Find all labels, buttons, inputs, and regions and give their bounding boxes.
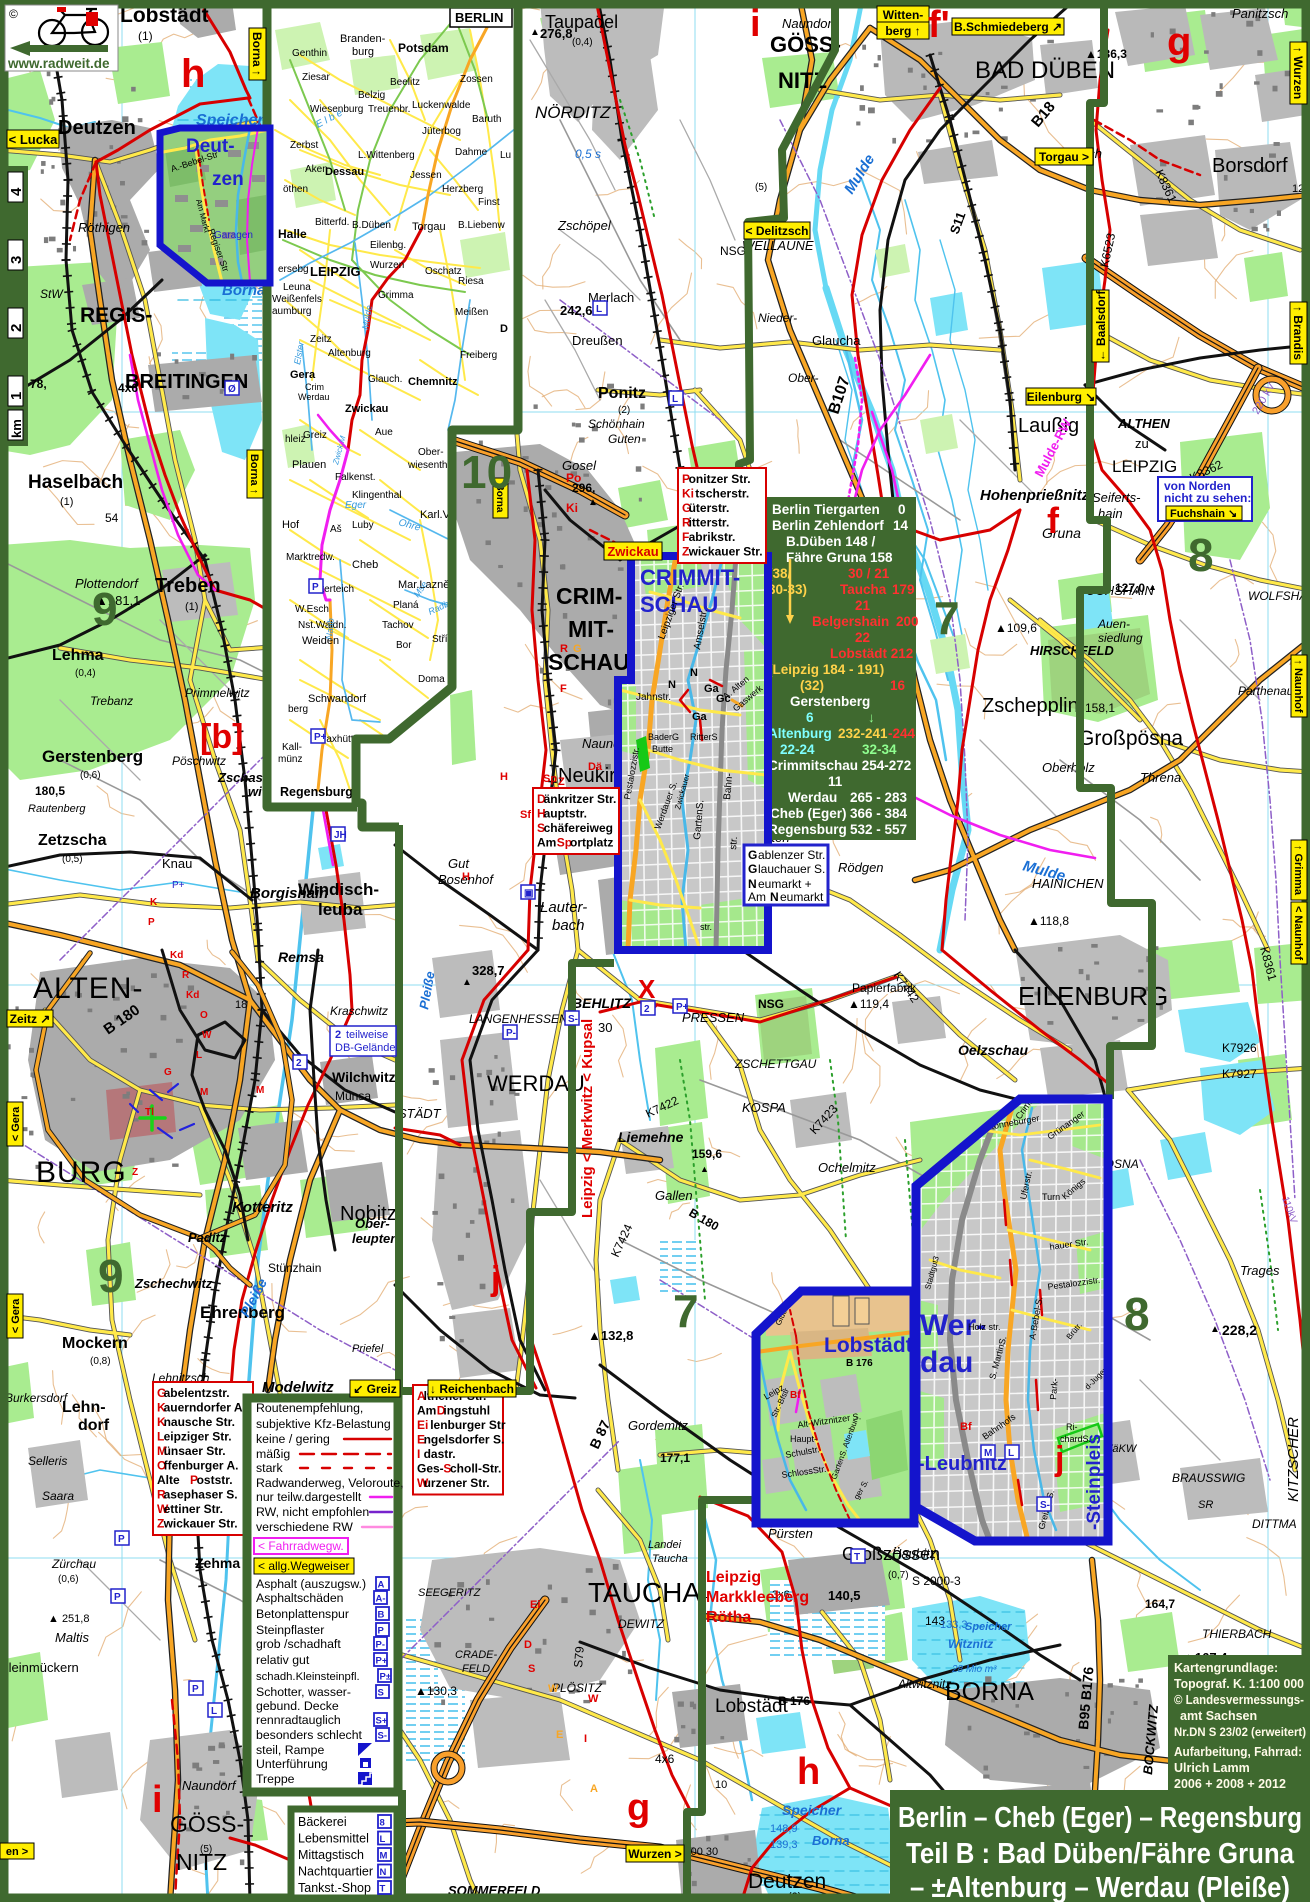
svg-text:G: G [573,643,582,655]
svg-text:7: 7 [673,1285,699,1337]
svg-text:GÖSS-: GÖSS- [170,1811,244,1837]
svg-text:P+: P+ [376,1656,388,1667]
svg-text:bach: bach [552,917,585,934]
svg-text:ngelsdorfer S.: ngelsdorfer S. [424,1433,505,1447]
svg-text:Werdau: Werdau [298,392,329,402]
svg-text:▲: ▲ [700,1164,709,1174]
svg-text:chardS.: chardS. [1060,1434,1091,1444]
svg-text:h: h [797,1751,820,1793]
svg-text:besonders schlecht: besonders schlecht [256,1728,363,1742]
svg-text:P: P [114,1592,121,1603]
svg-text:Steinpflaster: Steinpflaster [256,1623,324,1637]
svg-text:Kartengrundlage:: Kartengrundlage: [1174,1661,1278,1675]
svg-text:158,1: 158,1 [1085,701,1115,715]
svg-text:g: g [627,1787,650,1829]
svg-text:(0,8): (0,8) [90,1356,111,1367]
svg-text:K7926: K7926 [1222,1041,1257,1055]
svg-text:Schotter, wasser-: Schotter, wasser- [256,1685,351,1699]
svg-text:▲: ▲ [530,27,540,38]
svg-text:232-241: 232-241 [838,726,888,741]
svg-text:Cheb (Eger): Cheb (Eger) [770,806,847,821]
svg-text:Herzberg: Herzberg [442,184,483,195]
svg-text:140,5: 140,5 [828,1588,861,1603]
svg-text:dorf: dorf [78,1417,110,1434]
svg-text:nausche Str.: nausche Str. [164,1415,235,1429]
svg-text:P: P [378,1626,385,1637]
svg-text:P+: P+ [172,880,185,891]
svg-text:78,: 78, [30,377,47,391]
svg-text:Haselbach: Haselbach [28,472,123,493]
svg-text:wiesenth.: wiesenth. [407,460,450,471]
svg-text:siedlung: siedlung [1098,631,1143,645]
svg-text:S: S [528,1663,535,1675]
svg-text:Kleinmückern: Kleinmückern [0,1660,79,1675]
svg-text:↑ Grimma: ↑ Grimma [1292,845,1304,896]
svg-text:zu: zu [1135,436,1149,451]
svg-text:Eilenburg ↘: Eilenburg ↘ [1027,390,1096,404]
svg-text:Glauch.: Glauch. [368,374,402,385]
svg-text:h: h [181,52,205,96]
svg-text:Weißenfels: Weißenfels [272,294,322,305]
svg-text:Altenburg: Altenburg [768,726,832,741]
svg-text:< Lucka: < Lucka [9,132,59,147]
svg-text:Routenempfehlung,: Routenempfehlung, [256,1401,363,1415]
svg-text:ZSCHETTGAU: ZSCHETTGAU [734,1057,817,1071]
svg-text:P±: P± [380,1672,392,1683]
svg-text:Auen-: Auen- [1097,617,1130,631]
svg-text:urzener Str.: urzener Str. [424,1476,490,1490]
svg-text:rennradtauglich: rennradtauglich [256,1713,341,1727]
svg-text:E: E [556,1729,563,1741]
svg-text:▲130,3: ▲130,3 [415,1684,457,1698]
svg-text:9: 9 [98,1250,124,1302]
svg-text:Taucha: Taucha [840,582,887,597]
svg-text:Landei: Landei [648,1539,682,1551]
svg-text:Z: Z [132,1167,138,1178]
svg-text:Modelwitz: Modelwitz [262,1379,334,1396]
svg-text:Markkleeberg: Markkleeberg [706,1589,809,1606]
svg-text:Torgau >: Torgau > [1039,150,1089,164]
svg-text:P-: P- [376,1640,386,1651]
svg-text:berg: berg [288,704,308,715]
svg-text:← Baalsdorf: ← Baalsdorf [1094,290,1108,362]
svg-text:Paditz: Paditz [188,1230,227,1245]
svg-text:Zehma: Zehma [195,1555,240,1571]
svg-text:532 - 557: 532 - 557 [850,822,907,837]
svg-text:8: 8 [380,1818,385,1829]
svg-text:W: W [548,1683,559,1695]
svg-text:N: N [748,877,757,891]
svg-text:THIERBACH: THIERBACH [1202,1627,1272,1641]
svg-text:(32): (32) [800,678,824,693]
svg-text:ALTHEN: ALTHEN [1117,416,1170,431]
svg-text:177,1: 177,1 [660,1451,690,1465]
svg-text:Gc: Gc [716,693,731,705]
svg-text:stark: stark [256,1461,283,1475]
svg-text:Tankst.-Shop: Tankst.-Shop [298,1881,371,1895]
svg-text:Remsa: Remsa [278,949,324,965]
svg-text:↑ Naunhof: ↑ Naunhof [1292,659,1304,712]
svg-text:Primmelwitz: Primmelwitz [185,686,250,700]
svg-text:Ober-: Ober- [788,371,818,385]
svg-text:Borsdorf: Borsdorf [1212,155,1288,177]
svg-text:Kotteritz: Kotteritz [232,1199,293,1216]
svg-text:Glaucha: Glaucha [812,333,861,348]
svg-text:Speicher: Speicher [782,1802,843,1818]
svg-text:4: 4 [8,187,25,196]
svg-text:Chemnitz: Chemnitz [408,376,458,388]
svg-text:LEIPZIG: LEIPZIG [310,264,361,279]
svg-text:B.Düben 148 /: B.Düben 148 / [786,534,876,549]
svg-text:▲ 251,8: ▲ 251,8 [48,1613,89,1625]
svg-text:i: i [152,1779,163,1821]
svg-text:Tl: Tl [145,1107,154,1118]
svg-text:StW: StW [40,287,64,301]
svg-text:P+: P+ [314,732,327,743]
svg-text:Bf: Bf [790,1390,801,1401]
svg-text:Großpösna: Großpösna [1078,727,1183,750]
svg-text:B 176: B 176 [778,1694,810,1708]
svg-text:BORNA: BORNA [945,1678,1034,1706]
svg-text:L: L [672,394,678,405]
svg-text:onitzer Str.: onitzer Str. [689,472,751,486]
svg-text:< Gera: < Gera [10,1298,22,1333]
svg-text:en >: en > [6,1846,28,1858]
svg-text:Betonplattenspur: Betonplattenspur [256,1607,349,1621]
svg-text:©: © [9,7,18,21]
svg-text:Treuenbr.: Treuenbr. [368,104,410,115]
svg-text:Belgershain: Belgershain [812,614,889,629]
svg-text:asephaser S.: asephaser S. [164,1488,238,1502]
svg-text:Falkenst.: Falkenst. [335,472,376,483]
svg-text:P: P [192,1684,199,1695]
svg-text:NÖRDITZ: NÖRDITZ [535,103,611,122]
svg-text:Borna: Borna [812,1833,850,1848]
svg-text:180,5: 180,5 [35,784,65,798]
svg-text:SR: SR [1198,1499,1213,1511]
svg-text:Ponitz: Ponitz [598,385,646,402]
svg-text:B 176: B 176 [846,1358,873,1369]
svg-text:Genthin: Genthin [292,48,327,59]
svg-text:Unterführung: Unterführung [256,1757,328,1771]
svg-text:Ziesar: Ziesar [302,72,330,83]
svg-text:STÄDT: STÄDT [398,1106,442,1121]
svg-text:P: P [148,917,155,928]
svg-text:B.Düben: B.Düben [352,220,391,231]
svg-text:Altwitznitz: Altwitznitz [897,1677,951,1691]
svg-text:179: 179 [892,582,915,597]
svg-text:7: 7 [934,592,960,644]
svg-text:RW, nicht empfohlen: RW, nicht empfohlen [256,1505,369,1519]
svg-text:BEHLITZ: BEHLITZ [572,995,632,1011]
svg-text:Trebanz: Trebanz [90,694,133,708]
svg-text:D: D [500,323,508,335]
svg-text:Ober-: Ober- [355,1216,390,1231]
svg-text:Greiz: Greiz [303,430,327,441]
svg-text:Sp: Sp [543,773,557,785]
svg-text:WOLFSHA: WOLFSHA [1248,589,1307,603]
svg-text:Luckenwalde: Luckenwalde [412,100,471,111]
svg-text:dastr.: dastr. [424,1447,456,1461]
svg-text:NSG: NSG [758,997,784,1011]
svg-text:A-: A- [376,1594,386,1605]
svg-text:Ki: Ki [682,487,694,501]
svg-text:2: 2 [644,1004,650,1015]
svg-text:Ei: Ei [417,1418,428,1432]
svg-text:N: N [380,1867,387,1878]
svg-text:Ø: Ø [228,384,236,395]
svg-text:(5): (5) [755,182,767,193]
svg-text:JH: JH [334,830,347,841]
svg-text:< Naunhof: < Naunhof [1292,906,1304,960]
svg-text:f': f' [928,4,950,46]
svg-text:steil, Rampe: steil, Rampe [256,1743,325,1757]
svg-text:ffenburger A.: ffenburger A. [164,1459,239,1473]
svg-text:Leipzig < Merkwitz < Kupsal: Leipzig < Merkwitz < Kupsal [579,1019,596,1218]
svg-text:G: G [748,848,757,862]
svg-text:dau: dau [920,1346,973,1379]
svg-text:änkritzer Str.: änkritzer Str. [544,792,617,806]
svg-text:B.Liebenw: B.Liebenw [458,220,505,231]
svg-text:Jahnstr.: Jahnstr. [636,692,671,703]
svg-text:Jüterbog: Jüterbog [422,126,461,137]
svg-text:Bahn-: Bahn- [722,773,735,801]
svg-text:Potsdam: Potsdam [398,41,449,55]
svg-text:S 2000-3: S 2000-3 [912,1574,961,1588]
svg-text:Finst: Finst [478,197,500,208]
svg-text:nur teilw.dargestellt: nur teilw.dargestellt [256,1490,362,1504]
svg-text:Grimma: Grimma [378,290,414,301]
svg-text:Bäckerei: Bäckerei [298,1815,347,1829]
svg-text:Lehn-: Lehn- [62,1399,106,1416]
svg-text:BERLIN: BERLIN [455,10,503,25]
svg-text:Z: Z [558,776,565,788]
svg-text:DITTMA: DITTMA [1252,1517,1297,1531]
svg-text:Wurzen >: Wurzen > [628,1847,681,1861]
svg-text:[b]: [b] [200,718,243,756]
svg-text:228,2: 228,2 [1222,1322,1257,1338]
svg-text:Lehma: Lehma [52,647,104,664]
svg-text:Liemehne: Liemehne [618,1129,684,1145]
svg-text:KITZSCHER: KITZSCHER [1285,1417,1302,1502]
svg-text:N: N [690,667,698,679]
svg-text:MIT-: MIT- [568,616,614,642]
svg-text:G: G [164,1067,172,1078]
svg-text:Marktredw.: Marktredw. [286,552,335,563]
svg-text:Pürsten: Pürsten [768,1526,813,1541]
svg-text:Seiferts-: Seiferts- [1092,490,1141,505]
svg-text:(5): (5) [200,1844,212,1855]
svg-text:Dä: Dä [588,761,603,773]
svg-text:Gallen: Gallen [655,1188,693,1203]
svg-text:Wurzen: Wurzen [370,260,404,271]
svg-text:Hof: Hof [282,519,300,531]
svg-text:148,9: 148,9 [770,1823,798,1835]
svg-text:Taucha: Taucha [652,1553,688,1565]
svg-text:Nr.DN S 23/02 (erweitert): Nr.DN S 23/02 (erweitert) [1174,1725,1306,1739]
svg-text:Branden-: Branden- [340,33,386,45]
svg-text:auerndorfer A.: auerndorfer A. [164,1401,246,1415]
svg-text:Lu: Lu [500,150,511,161]
svg-text:Zeitz: Zeitz [310,334,332,345]
svg-text:Gordemitz: Gordemitz [628,1418,688,1433]
svg-text:Mittagstisch: Mittagstisch [298,1848,364,1862]
svg-text:21: 21 [855,598,871,613]
svg-text:CRIM-: CRIM- [556,583,622,609]
svg-text:leuba: leuba [318,900,363,919]
svg-text:L: L [380,1834,386,1845]
svg-text:(0,6): (0,6) [58,1574,79,1585]
svg-text:Borna ↑: Borna ↑ [250,32,264,76]
svg-text:– ±Altenburg – Werdau (Pleiße): – ±Altenburg – Werdau (Pleiße) [910,1872,1290,1902]
svg-text:Torgau: Torgau [412,221,446,233]
svg-text:ersebg: ersebg [278,264,309,275]
svg-text:Oschatz: Oschatz [425,266,462,277]
svg-text:Windisch-: Windisch- [298,880,379,899]
svg-text:Naundorf: Naundorf [182,1778,237,1793]
svg-text:28 Mio m³: 28 Mio m³ [951,1664,997,1675]
svg-text:Zwickau: Zwickau [607,544,658,559]
svg-text:lenburger Str: lenburger Str [430,1418,506,1432]
svg-text:BURG: BURG [36,1156,127,1189]
svg-text:30: 30 [598,1020,612,1035]
svg-text:Kall-: Kall- [282,742,302,753]
svg-text:W.Esch: W.Esch [295,604,329,615]
svg-text:Trages: Trages [1240,1263,1280,1278]
svg-text:Schwandorf: Schwandorf [308,693,367,705]
svg-text:54: 54 [105,511,119,525]
svg-text:164,7: 164,7 [1145,1597,1175,1611]
svg-text:R: R [182,970,190,981]
svg-text:Haubitz: Haubitz [892,1546,937,1561]
svg-text:↓: ↓ [868,710,875,725]
svg-text:Ri-: Ri- [1066,1422,1078,1432]
svg-text:Regensburg: Regensburg [768,822,847,837]
svg-text:hleiz: hleiz [285,434,306,445]
svg-text:6: 6 [806,710,814,725]
svg-text:(1): (1) [185,601,198,613]
svg-text:-244: -244 [888,726,916,741]
svg-text:F: F [560,683,567,695]
svg-text:(0,4): (0,4) [572,37,593,48]
svg-text:(1): (1) [138,29,153,43]
svg-text:↙ Greiz: ↙ Greiz [353,1382,396,1396]
svg-text:22: 22 [855,630,870,645]
svg-text:S-: S- [1040,1500,1050,1511]
svg-text:Threna: Threna [1140,770,1181,785]
svg-text:üterstr.: üterstr. [689,501,730,515]
svg-text:Am: Am [748,890,766,904]
svg-text:Meißen: Meißen [455,307,488,318]
svg-text:< Delitzsch: < Delitzsch [745,224,808,238]
svg-text:Mockern: Mockern [62,1335,128,1352]
svg-text:200: 200 [896,614,919,629]
svg-text:Zschepplin: Zschepplin [982,695,1079,717]
svg-text:T: T [380,1884,386,1895]
svg-text:Witten-: Witten- [883,8,924,22]
svg-text:TAUCHA: TAUCHA [588,1577,701,1608]
svg-text:30-33): 30-33) [768,582,807,597]
svg-text:▲118,8: ▲118,8 [1028,914,1069,928]
svg-text:K: K [150,897,158,908]
svg-text:LEIPZIG: LEIPZIG [1112,457,1177,476]
svg-text:Ga: Ga [692,711,708,723]
svg-text:mäßig: mäßig [256,1447,290,1461]
svg-text:gebund. Decke: gebund. Decke [256,1699,339,1713]
svg-text:(1): (1) [60,496,73,508]
svg-text:Dreußen: Dreußen [572,333,623,348]
svg-text:D: D [524,1639,532,1651]
svg-text:burg: burg [352,46,374,58]
svg-text:P: P [118,1534,125,1545]
svg-text:Am: Am [537,836,556,850]
svg-text:Doma: Doma [418,674,445,685]
svg-text:Lobstädt: Lobstädt [824,1334,913,1357]
svg-text:Naundorf: Naundorf [782,16,837,31]
svg-text:oststr.: oststr. [197,1473,233,1487]
svg-text:Oberholz: Oberholz [1042,760,1095,775]
svg-text:2006 + 2008 + 2012: 2006 + 2008 + 2012 [1174,1777,1286,1791]
svg-text:DB-Gelände: DB-Gelände [335,1042,396,1054]
svg-text:Werdau: Werdau [788,790,837,805]
svg-text:km: km [9,419,24,438]
svg-text:Deutzen: Deutzen [748,1870,826,1893]
svg-text:Berlin – Cheb (Eger) – Regensb: Berlin – Cheb (Eger) – Regensburg [898,1802,1302,1834]
svg-text:Holz str.: Holz str. [968,1322,1001,1332]
svg-text:ingstuhl: ingstuhl [443,1404,490,1418]
svg-text:ettiner Str.: ettiner Str. [164,1502,223,1516]
svg-text:M: M [256,1085,264,1096]
svg-text:nicht zu sehen:: nicht zu sehen: [1164,491,1251,505]
svg-text:M: M [380,1851,388,1862]
svg-text:wickauer Str.: wickauer Str. [163,1517,238,1531]
svg-text:(0,5): (0,5) [62,854,83,865]
svg-text:Maltis: Maltis [55,1630,89,1645]
svg-text:S79: S79 [571,1645,587,1668]
svg-text:auptstr.: auptstr. [544,807,587,821]
svg-text:Haupt-: Haupt- [790,1434,817,1444]
svg-text:L: L [1008,1448,1014,1459]
svg-text:A: A [378,1580,385,1591]
svg-text:Regensburg: Regensburg [280,785,353,799]
svg-text:P-: P- [506,1028,516,1039]
svg-text:wickauer Str.: wickauer Str. [688,545,763,559]
svg-text:G: G [748,862,757,876]
svg-text:Ober-: Ober- [418,447,444,458]
svg-text:Burkersdorf: Burkersdorf [5,1391,69,1405]
svg-text:159,6: 159,6 [692,1147,722,1161]
svg-text:Zschöpel: Zschöpel [557,218,612,233]
svg-text:▲: ▲ [462,977,472,988]
svg-text:Berlin Zehlendorf: Berlin Zehlendorf [772,518,884,533]
svg-text:Münsa: Münsa [335,1089,371,1103]
svg-text:Sf: Sf [520,809,531,821]
svg-text:Gera: Gera [290,369,316,381]
svg-text:Eger: Eger [345,500,367,511]
svg-text:-Steinpleis: -Steinpleis [1084,1434,1105,1530]
svg-text:Crimmitschau 254-272: Crimmitschau 254-272 [768,758,911,773]
svg-text:subjektive Kfz-Belastung: subjektive Kfz-Belastung [256,1417,391,1431]
svg-text:328,7: 328,7 [472,963,505,978]
svg-text:Nachtquartier: Nachtquartier [298,1865,373,1879]
svg-text:Fuchshain ↘: Fuchshain ↘ [1170,508,1237,520]
svg-text:Treppe: Treppe [256,1772,295,1786]
svg-text:Borna ↑: Borna ↑ [248,454,260,494]
svg-text:Röthigen: Röthigen [78,220,130,235]
svg-text:Aue: Aue [375,427,393,438]
svg-text:Zossen: Zossen [460,74,493,85]
svg-text:Tachov: Tachov [382,620,414,631]
